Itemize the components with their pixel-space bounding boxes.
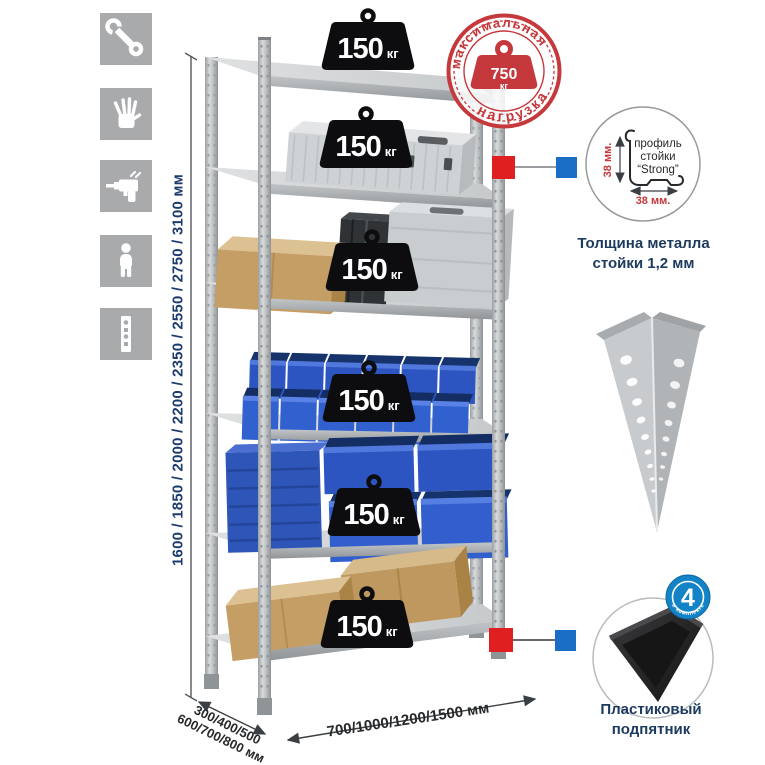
load-unit: кг (391, 267, 403, 282)
height-dimension-label: 1600 / 1850 / 2000 / 2200 / 2350 / 2550 … (170, 174, 187, 566)
stamp-weight-unit: кг (500, 81, 509, 91)
blue-marker-bottom (555, 630, 576, 651)
max-load-stamp: 750 кг максимальная нагрузка (438, 3, 569, 136)
profile-callout (492, 156, 577, 179)
profile-dim-vertical: 38 мм. (602, 143, 614, 178)
blue-crate (225, 442, 332, 553)
perforated-post-icon (100, 308, 152, 360)
profile-dim-horizontal: 38 мм. (636, 195, 671, 207)
corner-post-image (596, 312, 706, 532)
kit-count-badge: 4 в комплекте (666, 575, 710, 619)
load-unit: кг (393, 512, 405, 527)
foot-detail-circle: 4 в комплекте (593, 575, 713, 718)
profile-label-3: “Strong” (637, 164, 679, 176)
load-unit: кг (388, 398, 400, 413)
kit-count-value: 4 (681, 584, 695, 612)
person-icon (100, 235, 152, 287)
load-badge-shelf-1: 150кг (320, 8, 416, 74)
foot-caption: Пластиковый подпятник (571, 700, 731, 739)
load-badge-shelf-4: 150кг (321, 360, 417, 426)
load-badge-shelf-3: 150кг (324, 229, 420, 295)
rack-infographic: 750 кг максимальная нагрузка 38 мм. 38 м… (0, 0, 765, 765)
load-badge-shelf-6: 150кг (319, 586, 415, 652)
load-badge-shelf-5: 150кг (326, 474, 422, 540)
load-value: 150 (343, 499, 388, 532)
drill-icon (100, 160, 152, 212)
red-marker-bottom (489, 628, 513, 652)
load-unit: кг (386, 624, 398, 639)
load-value: 150 (341, 254, 386, 287)
gloves-icon (100, 88, 152, 140)
red-marker-top (492, 156, 515, 179)
blue-marker-top (556, 157, 577, 178)
load-value: 150 (338, 385, 383, 418)
height-dimension-line (185, 53, 197, 701)
profile-caption: Толщина металла стойки 1,2 мм (556, 234, 731, 273)
profile-detail-circle: 38 мм. 38 мм. профиль стойки “Strong” (586, 107, 700, 221)
load-value: 150 (337, 33, 382, 66)
profile-label-2: стойки (640, 151, 675, 163)
load-value: 150 (335, 131, 380, 164)
load-unit: кг (385, 144, 397, 159)
load-badge-shelf-2: 150кг (318, 106, 414, 172)
wrench-icon (100, 13, 152, 65)
foot-callout (489, 628, 576, 652)
load-value: 150 (336, 611, 381, 644)
load-unit: кг (387, 46, 399, 61)
profile-label-1: профиль (634, 138, 682, 150)
